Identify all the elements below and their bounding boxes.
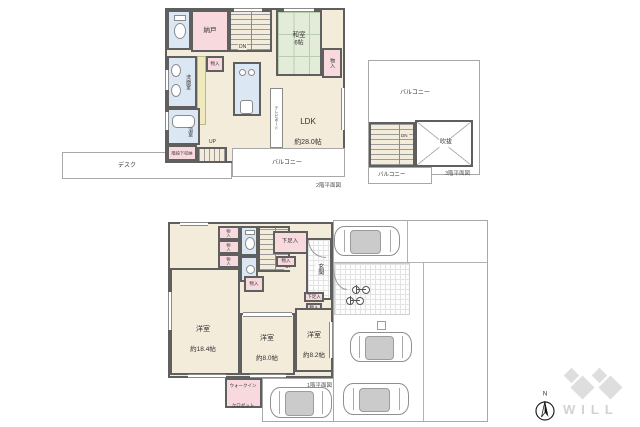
stove-burner-icon	[239, 69, 246, 76]
monoire-label: 物入	[227, 243, 232, 251]
washitsu-size: 6帖	[294, 41, 303, 47]
ldk-size: 約28.0帖	[294, 139, 322, 146]
window	[180, 222, 208, 226]
car-icon	[334, 226, 400, 256]
room2-label: 洋室 約8.0帖	[256, 326, 278, 366]
window	[165, 70, 169, 90]
floor1-toilet-room	[240, 226, 258, 256]
washitsu-label: 和室 6帖	[293, 32, 306, 49]
stair-divider	[399, 124, 400, 165]
monoire-hall-label: 物入	[250, 281, 259, 287]
window	[329, 322, 333, 358]
window	[234, 8, 262, 12]
understair-label: 階段下収納	[172, 150, 193, 155]
bicycle-icon	[346, 296, 364, 304]
toilet-icon	[174, 15, 186, 21]
floor2-caption: 2階平面図	[316, 181, 341, 189]
car-icon	[270, 387, 332, 418]
car-icon	[343, 383, 409, 415]
north-label: N	[543, 391, 547, 399]
window	[284, 8, 314, 12]
floor3-dn-label: DN	[400, 133, 409, 138]
toilet-icon	[245, 230, 255, 235]
floor3-balcony-bottom-label: バルコニー	[378, 172, 405, 179]
will-logo: WILL	[558, 366, 634, 418]
kitchen-island	[233, 62, 261, 116]
car-roof	[359, 388, 389, 413]
stair-divider	[251, 12, 252, 50]
floor3-balcony-top-label: バルコニー	[400, 90, 430, 97]
getabako-south-label: 下足入	[307, 294, 321, 300]
car-line	[344, 230, 345, 251]
nando-label: 納戸	[204, 27, 217, 35]
floor2-balcony-label: バルコニー	[272, 160, 302, 167]
monoire-label: 物入	[227, 257, 232, 265]
parking-divider	[423, 263, 424, 421]
floor2-bath-room	[167, 108, 200, 145]
room2-name: 洋室	[260, 335, 274, 342]
sink-icon	[171, 64, 181, 77]
window	[168, 292, 172, 330]
bicycle-wheel	[362, 286, 370, 294]
will-logo-text: WILL	[563, 402, 619, 417]
ldk-name: LDK	[300, 117, 316, 126]
desk-label: デスク	[118, 163, 136, 170]
floor2-stairs-up	[197, 147, 227, 163]
floor3-caption: 3階平面図	[445, 169, 470, 177]
bicycle-icon	[352, 285, 370, 293]
monoire-east-label: 物入	[329, 58, 335, 68]
bath-label: 浴室	[187, 127, 193, 137]
room3-size: 約8.2帖	[303, 352, 325, 359]
wic-line1: ウォークイン	[230, 383, 257, 388]
void-label: 吹抜	[439, 139, 453, 147]
parking-divider	[407, 220, 408, 263]
bicycle-handlebar	[356, 285, 357, 293]
walkin-closet-label: ウォークイン クロゼット	[230, 373, 257, 413]
room1-size: 約18.4帖	[190, 346, 216, 353]
floor2-toilet-room	[167, 10, 191, 50]
tv-board-label: テレビボード	[275, 106, 280, 130]
kitchen-sink-icon	[240, 100, 253, 114]
car-line	[402, 336, 403, 357]
room1-label: 洋室 約18.4帖	[190, 317, 216, 357]
car-roof	[285, 391, 313, 415]
floor2-senmen-room	[167, 56, 197, 108]
monoire-entry-label: 物入	[282, 258, 291, 264]
stove-burner-icon	[248, 69, 255, 76]
car-line	[322, 391, 323, 413]
car-line	[359, 336, 360, 357]
window	[341, 88, 345, 130]
ldk-label: LDK 約28.0帖	[294, 110, 322, 150]
car-roof	[365, 336, 393, 359]
room1-name: 洋室	[196, 326, 210, 333]
wic-line2: クロゼット	[232, 403, 255, 408]
car-line	[390, 230, 391, 251]
bicycle-frame	[357, 289, 366, 290]
room3-name: 洋室	[307, 332, 321, 339]
toilet-bowl-icon	[245, 237, 255, 250]
bicycle-handlebar	[350, 296, 351, 304]
senmen-label: 洗面室	[185, 75, 191, 90]
sink-icon	[246, 265, 255, 274]
floor3-stairs	[369, 122, 415, 167]
getabako-label: 下足入	[282, 239, 299, 246]
toilet-bowl-icon	[174, 23, 186, 39]
bicycle-wheel	[356, 297, 364, 305]
genkan-label: 玄関	[315, 263, 323, 275]
car-line	[279, 391, 280, 413]
washitsu-name: 和室	[293, 32, 306, 39]
floorplan-canvas: デスク 納戸 DN 和室 6帖 物入 洗面室 物入 浴室 階段下収納 UP テレ…	[0, 0, 640, 427]
sink-icon	[171, 84, 181, 97]
room3-label: 洋室 約8.2帖	[303, 323, 325, 363]
window	[188, 374, 226, 378]
north-compass-icon: N	[533, 390, 557, 424]
car-stopper	[377, 321, 386, 330]
monoire-label: 物入	[227, 229, 232, 237]
bicycle-frame	[351, 300, 360, 301]
compass-needle	[533, 399, 557, 423]
floor2-stairs-down	[229, 10, 272, 52]
floor2-dn-label: DN	[238, 44, 247, 50]
monoire-hall-label: 物入	[211, 61, 220, 67]
window	[165, 112, 169, 130]
car-roof	[350, 230, 380, 253]
car-icon	[350, 332, 412, 362]
car-line	[353, 388, 354, 411]
window	[243, 312, 292, 317]
floor2-up-label: UP	[209, 139, 216, 145]
room2-size: 約8.0帖	[256, 355, 278, 362]
car-line	[399, 388, 400, 411]
